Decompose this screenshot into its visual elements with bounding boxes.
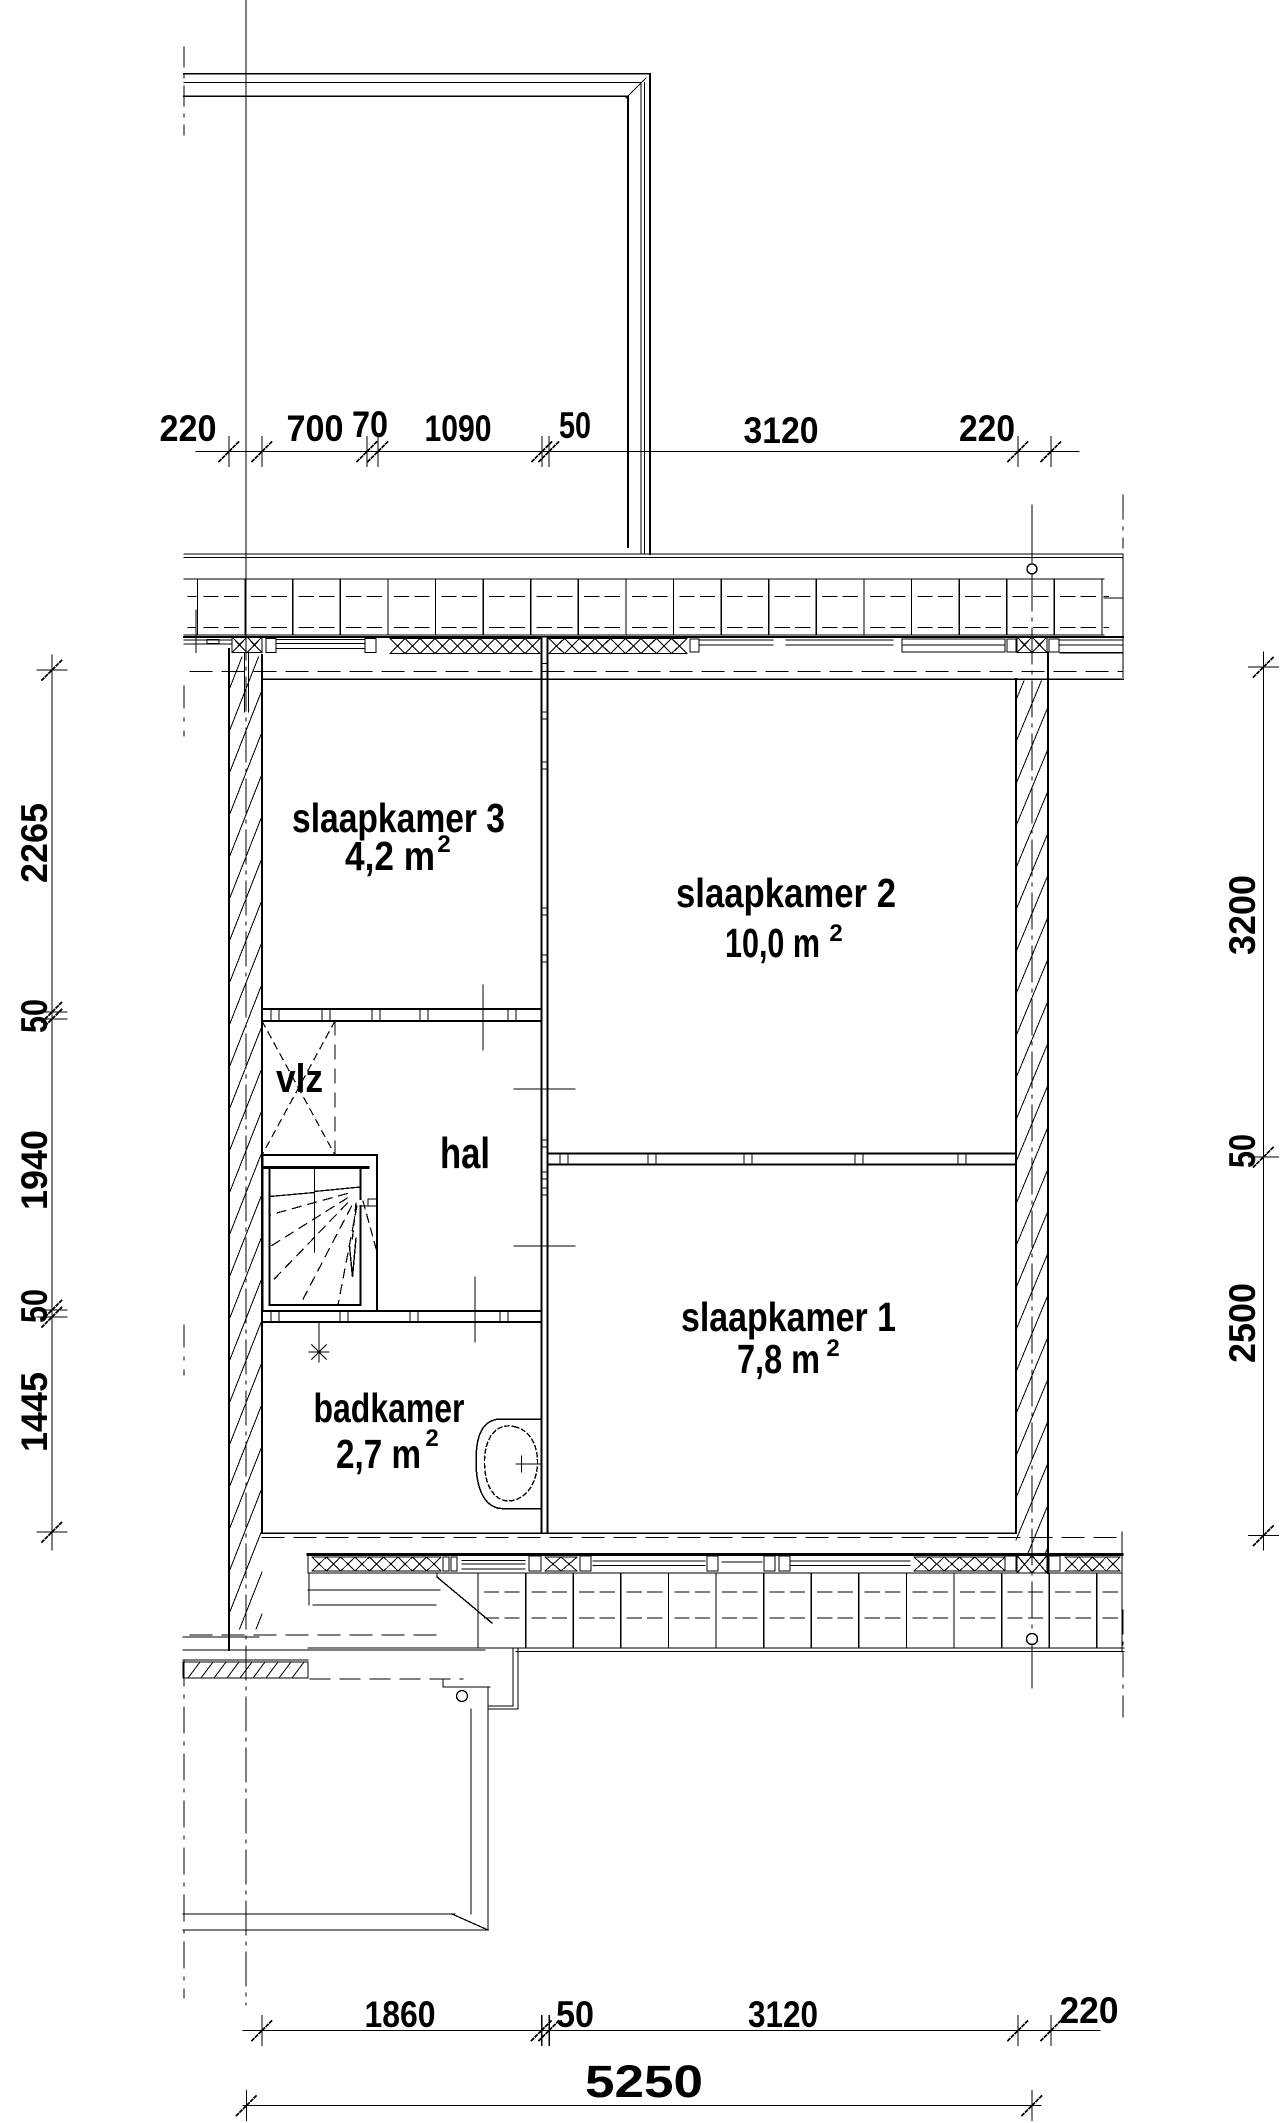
- svg-text:50: 50: [556, 1994, 594, 2035]
- svg-text:50: 50: [1222, 1134, 1263, 1168]
- svg-text:3200: 3200: [1222, 875, 1263, 955]
- svg-text:7,8 m: 7,8 m: [737, 1336, 820, 1382]
- svg-text:slaapkamer 1: slaapkamer 1: [681, 1294, 896, 1340]
- svg-text:1940: 1940: [14, 1130, 55, 1210]
- svg-text:2: 2: [829, 920, 842, 947]
- svg-text:slaapkamer 2: slaapkamer 2: [676, 870, 896, 916]
- svg-text:220: 220: [160, 408, 217, 449]
- svg-text:2,7 m: 2,7 m: [336, 1431, 421, 1477]
- svg-text:vlz: vlz: [276, 1057, 323, 1101]
- svg-text:2265: 2265: [14, 803, 55, 883]
- svg-text:1445: 1445: [14, 1372, 55, 1452]
- svg-text:3120: 3120: [744, 410, 819, 451]
- svg-text:1090: 1090: [425, 408, 492, 449]
- svg-text:2: 2: [437, 831, 450, 858]
- svg-text:10,0 m: 10,0 m: [725, 920, 820, 966]
- svg-text:50: 50: [14, 1289, 55, 1323]
- svg-text:700: 700: [287, 408, 344, 449]
- svg-text:badkamer: badkamer: [314, 1385, 465, 1431]
- svg-text:2: 2: [826, 1335, 839, 1362]
- svg-text:2: 2: [425, 1425, 438, 1452]
- svg-text:5250: 5250: [585, 2056, 703, 2107]
- svg-text:hal: hal: [440, 1129, 490, 1178]
- svg-text:50: 50: [14, 999, 55, 1033]
- svg-text:70: 70: [352, 404, 388, 445]
- svg-text:220: 220: [1060, 1990, 1119, 2031]
- svg-text:4,2 m: 4,2 m: [345, 833, 435, 879]
- svg-text:1860: 1860: [365, 1994, 436, 2035]
- svg-text:2500: 2500: [1222, 1283, 1263, 1363]
- svg-text:50: 50: [559, 405, 591, 446]
- svg-text:220: 220: [959, 408, 1015, 449]
- svg-text:3120: 3120: [748, 1994, 818, 2035]
